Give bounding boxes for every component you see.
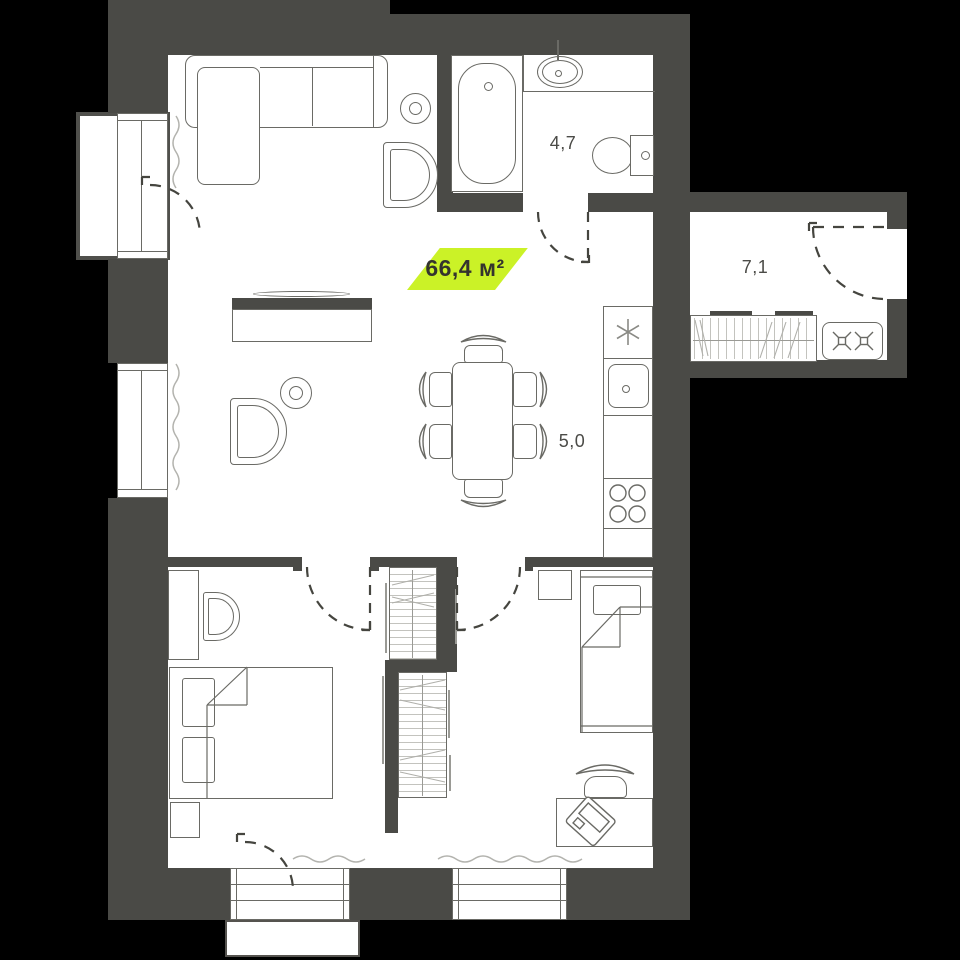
chair-icon (513, 372, 537, 407)
kitchen-counter (603, 306, 653, 558)
wall-interior-a-cap (293, 557, 302, 571)
tv-stand-icon (232, 298, 372, 309)
sliding-door-panel (455, 589, 457, 644)
chair-icon (464, 345, 503, 363)
window-frame-line (117, 370, 168, 371)
chair-icon (584, 776, 627, 798)
total-area-label: 66,4 м² (402, 255, 528, 282)
kitchen-separator (603, 415, 653, 416)
wardrobe-shelves-icon (389, 567, 437, 660)
window-frame-line (141, 120, 142, 251)
chair-icon (429, 372, 452, 407)
wardrobe-divider (412, 570, 413, 658)
sliding-door-panel (449, 755, 451, 791)
wall-bottom-c (567, 868, 690, 920)
faucet-knob (555, 70, 562, 77)
floor-plan: 4,7 7,1 5,0 66,4 м² (0, 0, 960, 960)
wall-right-upper (653, 14, 690, 570)
wall-interior-b-cap (370, 557, 379, 571)
wall-bottom-a (108, 868, 230, 920)
tv-cabinet (232, 309, 372, 342)
desk-icon (556, 798, 653, 847)
window-bottom-right (452, 868, 567, 920)
wall-wardrobe-left (385, 660, 398, 833)
hallway-area-label: 7,1 (737, 257, 773, 278)
wall-hallway-top (653, 192, 907, 212)
sliding-door-panel (382, 676, 384, 764)
window-frame-line (141, 370, 142, 489)
sofa-armrest-line (373, 56, 374, 127)
window-frame-line (452, 900, 567, 901)
wardrobe-hanger-lines (694, 318, 813, 359)
kitchen-separator (603, 478, 653, 479)
hob-2-burner-icon (822, 322, 883, 360)
window-frame-line (458, 868, 459, 920)
sliding-door-panel (448, 690, 450, 738)
wall-interior-c-cap (525, 557, 533, 571)
wall-interior-b (370, 557, 457, 567)
bathroom-area-label: 4,7 (545, 133, 581, 154)
window-frame-line (343, 868, 344, 920)
wall-bathroom-bottom-left (437, 193, 523, 212)
pillow (182, 678, 215, 727)
wall-wardrobe-right (437, 567, 457, 672)
window-frame-line (117, 251, 168, 252)
sliding-door-panel (385, 583, 387, 653)
sofa-seat-line (260, 67, 373, 68)
tv-icon (253, 291, 350, 297)
window-frame-line (230, 900, 350, 901)
toilet-button (641, 151, 650, 160)
side-table-inner (289, 386, 303, 400)
toilet-icon (592, 137, 633, 174)
wall-top-right (390, 14, 653, 55)
pillow (182, 737, 215, 783)
wardrobe-divider (422, 675, 423, 796)
wall-interior-a (168, 557, 302, 567)
side-table-inner (409, 102, 422, 115)
chair-icon (513, 424, 537, 459)
kitchen-sink-drain (622, 385, 630, 393)
kitchen-separator (603, 528, 653, 529)
wall-right-lower (653, 557, 690, 868)
wardrobe-rail-line (693, 340, 814, 341)
wall-hallway-bottom (690, 360, 907, 378)
nightstand-icon (538, 570, 572, 600)
window-frame-line (117, 489, 168, 490)
window-frame-line (452, 884, 567, 885)
window-frame-line (117, 120, 168, 121)
sofa-chaise (197, 67, 260, 185)
desk-icon (168, 570, 199, 660)
window-bottom-left (230, 868, 350, 920)
kitchen-area-label: 5,0 (552, 431, 592, 452)
sofa-cushion-line (312, 68, 313, 126)
faucet-icon (557, 40, 559, 60)
wardrobe-top-tick (775, 311, 813, 315)
chair-icon (429, 424, 452, 459)
pillow (593, 585, 641, 615)
window-frame-line (560, 868, 561, 920)
wall-left-b (108, 259, 168, 363)
window-left-upper (117, 113, 168, 259)
nightstand-icon (170, 802, 200, 838)
wall-top-left (108, 0, 390, 55)
bathtub-drain (484, 82, 493, 91)
wall-bottom-b (350, 868, 452, 920)
wall-left-c (108, 498, 168, 868)
chair-icon (464, 479, 503, 498)
wall-entry-jamb-top (887, 212, 907, 229)
window-left-lower (117, 363, 168, 498)
wardrobe-top-tick (710, 311, 752, 315)
dining-table-icon (452, 362, 513, 480)
wall-bathroom-bottom-right (588, 193, 690, 212)
kitchen-separator (603, 358, 653, 359)
window-frame-line (230, 884, 350, 885)
wall-interior-c (525, 557, 653, 567)
window-frame-line (236, 868, 237, 920)
wall-left-a (108, 55, 168, 113)
balcony-bottom (225, 920, 360, 957)
